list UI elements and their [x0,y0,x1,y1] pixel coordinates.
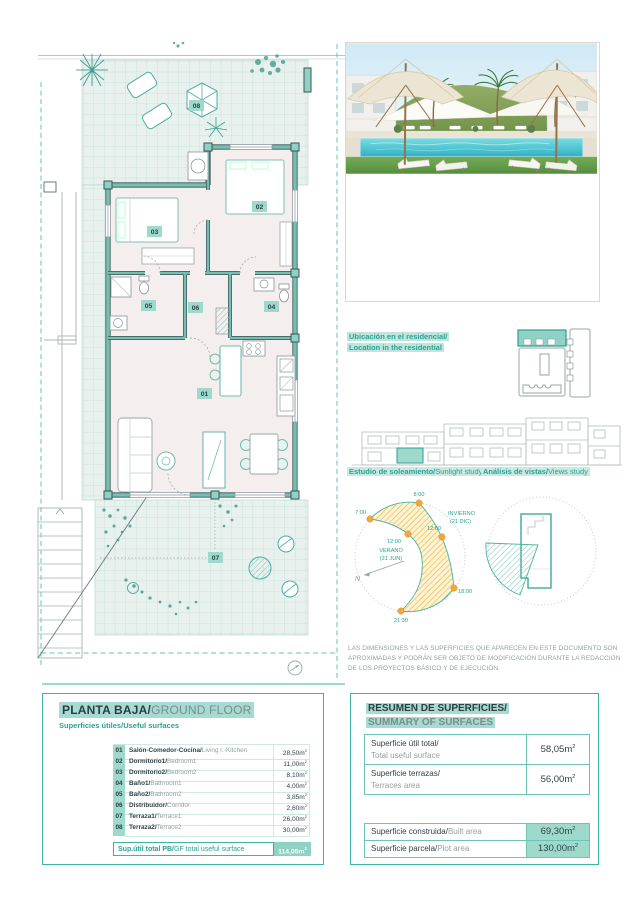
brochure-page: 01 02 03 04 05 06 07 08 [0,0,640,910]
location-title-en: Location in the residential [347,343,444,352]
table-row: 03Dormitorio2/Bedroom28,10m2 [113,767,310,778]
ground-floor-panel: PLANTA BAJA/GROUND FLOOR Superficies úti… [42,693,324,865]
total-row: Sup.útil total PB/GF total useful surfac… [113,842,311,856]
hour-label: 18:00 [458,589,472,595]
plot-area-label: Superficie parcela/Plot area [365,841,526,857]
total-label-en: GF total useful surface [174,846,244,853]
table-row: Superficie terrazas/Terraces area 56,00m… [365,765,589,794]
north-label: N [355,576,361,583]
ground-floor-subtitle: Superficies útiles/Useful surfaces [59,721,179,730]
total-label-es: Sup.útil total PB/ [118,846,174,853]
render-photo-frame [345,42,600,302]
hour-label: 21:30 [394,618,408,624]
hour-label: 12:00 [387,539,401,545]
useful-surfaces-rows: 01Salón-Comedor-Cocina/Living r.-Kitchen… [113,744,310,833]
summary-of-surfaces-panel: RESUMEN DE SUPERFICIES/ SUMMARY OF SURFA… [350,693,599,865]
built-area-value: 69,30m2 [526,824,589,840]
site-plan-diagram [508,327,596,403]
plot-area-value: 130,00m2 [526,841,589,857]
title-en: GROUND FLOOR [151,703,251,717]
views-diagram [480,485,625,637]
sunlight-title-en: Sunlight study [435,467,482,476]
summary-title: RESUMEN DE SUPERFICIES/ SUMMARY OF SURFA… [366,702,509,729]
table-row: 07Terraza1/Terrace126,00m2 [113,811,310,822]
table-row: Superficie construida/Built area 69,30m2 [365,824,589,841]
north-mark-icon [288,661,302,675]
terraces-value: 56,00m2 [526,765,589,794]
room-label: 02 [256,204,264,211]
winter-date-label: (21 DIC) [450,519,471,525]
room-label: 05 [145,303,153,310]
hour-label: 8:00 [414,492,425,498]
table-row: 02Dormitorio1/Bedroom111,00m2 [113,756,310,767]
disclaimer-text: LAS DIMENSIONES Y LAS SUPERFICIES QUE AP… [348,644,626,674]
highlighted-unit [397,448,423,463]
summary-title-en: SUMMARY OF SURFACES [366,717,495,728]
row-area: 30,00m2 [273,822,310,837]
row-label: Terraza2/Terrace2 [125,822,273,837]
summary-table-built-plot: Superficie construida/Built area 69,30m2… [364,823,590,858]
summary-title-es: RESUMEN DE SUPERFICIES/ [366,703,509,714]
pool-render-photo [346,43,597,174]
floor-plan: 01 02 03 04 05 06 07 08 [30,40,345,690]
location-title: Ubicación en el residencial/ Location in… [347,331,449,354]
room-label: 04 [268,304,276,311]
total-label: Sup.útil total PB/GF total useful surfac… [113,842,274,856]
views-title-en: Views study [548,467,588,476]
elevation-diagram [348,408,626,468]
hour-label: 7:00 [355,510,366,516]
location-title-es: Ubicación en el residencial/ [347,332,449,341]
summer-label: VERANO [379,548,403,554]
views-study-title: Análisis de vistas/Views study [481,467,590,476]
hour-label: 12:00 [427,526,441,532]
ground-floor-title: PLANTA BAJA/GROUND FLOOR [59,703,254,717]
views-title-es: Análisis de vistas/ [483,467,548,476]
table-row: 01Salón-Comedor-Cocina/Living r.-Kitchen… [113,745,310,756]
terraces-label: Superficie terrazas/Terraces area [365,765,526,794]
table-row: Superficie parcela/Plot area 130,00m2 [365,841,589,857]
table-row: 04Baño1/Bathroom14,00m2 [113,778,310,789]
sunlight-study-title: Estudio de soleamiento/Sunlight study [347,467,484,476]
sun-path-diagram: N 7:00 8:00 12:00 12:00 18:00 21:30 VERA… [336,485,482,637]
room-label: 08 [193,103,201,110]
table-row: 05Baño2/Bathroom23,85m2 [113,789,310,800]
title-es: PLANTA BAJA/ [62,703,151,717]
room-label: 07 [212,555,220,562]
table-row: 08Terraza2/Terrace230,00m2 [113,822,310,833]
total-value: 114,05m2 [274,842,311,856]
useful-total-label: Superficie útil total/Total useful surfa… [365,735,526,764]
laundry-nook [188,152,208,180]
room-label: 03 [151,229,159,236]
room-label: 01 [201,391,209,398]
summary-table-main: Superficie útil total/Total useful surfa… [364,734,590,795]
table-row: Superficie útil total/Total useful surfa… [365,735,589,765]
sunlight-title-es: Estudio de soleamiento/ [349,467,435,476]
table-row: 06Distribuidor/Corridor2,60m2 [113,800,310,811]
row-number: 08 [113,822,125,837]
useful-total-value: 58,05m2 [526,735,589,764]
winter-label: INVIERNO [448,511,476,517]
built-area-label: Superficie construida/Built area [365,824,526,840]
summer-date-label: (21 JUN) [380,556,403,562]
room-label: 06 [192,305,200,312]
